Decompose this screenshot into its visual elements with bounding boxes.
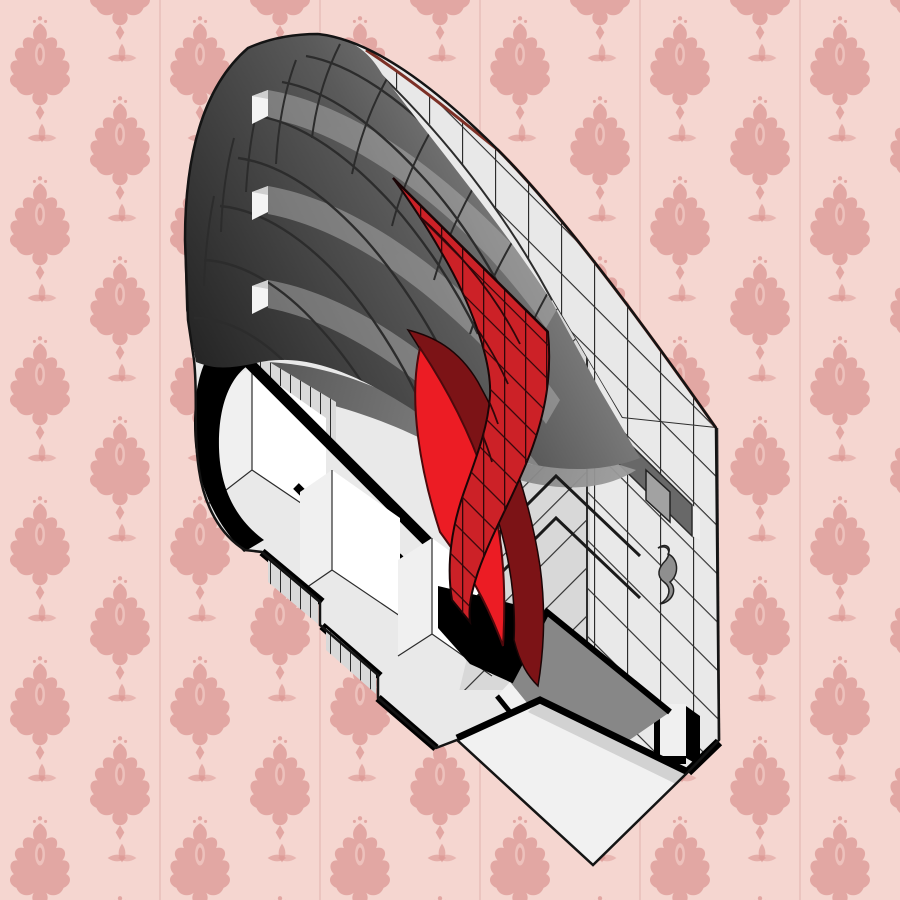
- axonometric-illustration: [0, 0, 900, 900]
- screenshot-canvas: [0, 0, 900, 900]
